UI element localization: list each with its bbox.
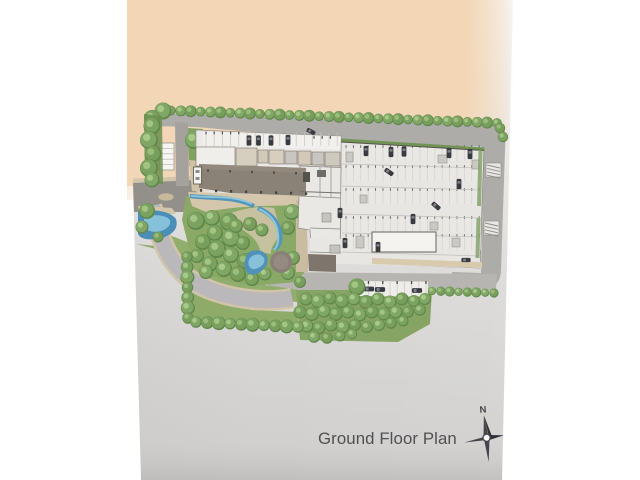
svg-text:N: N [479,404,487,415]
